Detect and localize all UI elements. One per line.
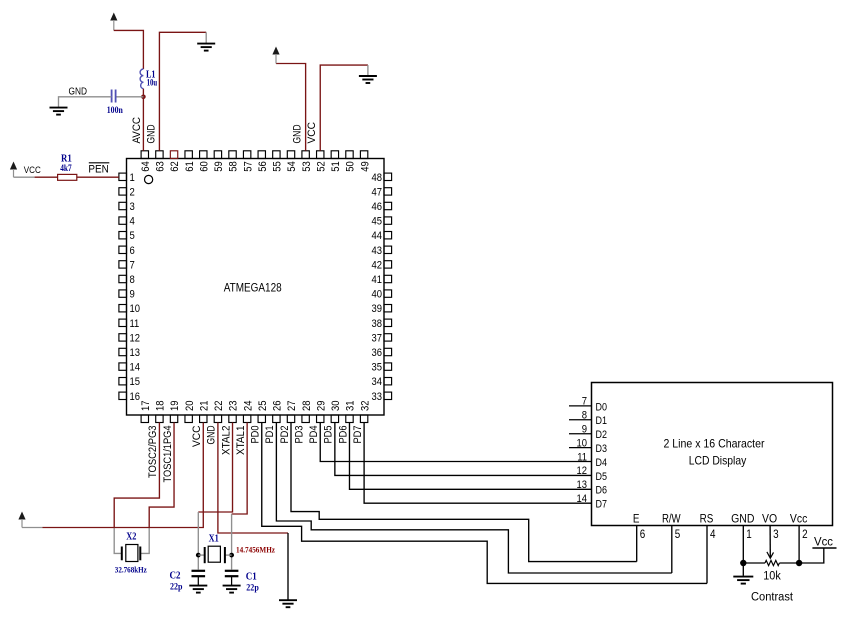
svg-text:26: 26 bbox=[272, 401, 284, 412]
svg-text:D5: D5 bbox=[596, 471, 608, 483]
svg-text:3: 3 bbox=[773, 529, 779, 541]
svg-text:VCC: VCC bbox=[191, 425, 203, 447]
svg-text:54: 54 bbox=[286, 161, 298, 172]
svg-text:15: 15 bbox=[130, 376, 141, 388]
svg-text:14: 14 bbox=[130, 362, 141, 374]
svg-text:25: 25 bbox=[257, 401, 269, 412]
svg-text:11: 11 bbox=[130, 318, 140, 330]
svg-text:Vcc: Vcc bbox=[790, 514, 808, 526]
svg-text:45: 45 bbox=[372, 216, 383, 228]
svg-text:12: 12 bbox=[130, 332, 141, 344]
svg-text:2: 2 bbox=[130, 186, 135, 198]
svg-text:C1: C1 bbox=[246, 571, 257, 582]
svg-text:PD6: PD6 bbox=[337, 426, 349, 444]
svg-text:50: 50 bbox=[345, 161, 357, 172]
svg-text:56: 56 bbox=[257, 161, 269, 172]
svg-text:21: 21 bbox=[198, 401, 210, 412]
svg-text:59: 59 bbox=[213, 161, 225, 172]
svg-text:RS: RS bbox=[700, 514, 714, 526]
svg-text:R/W: R/W bbox=[662, 514, 681, 526]
svg-text:VCC: VCC bbox=[24, 165, 41, 176]
svg-text:GND: GND bbox=[731, 514, 754, 526]
svg-text:GND: GND bbox=[292, 124, 304, 143]
svg-text:8: 8 bbox=[130, 274, 135, 286]
svg-text:42: 42 bbox=[372, 259, 383, 271]
svg-text:58: 58 bbox=[228, 161, 240, 172]
svg-text:D4: D4 bbox=[596, 457, 608, 469]
svg-text:38: 38 bbox=[372, 318, 383, 330]
svg-text:VCC: VCC bbox=[306, 122, 318, 144]
svg-text:64: 64 bbox=[140, 161, 152, 172]
svg-text:63: 63 bbox=[155, 161, 167, 172]
svg-text:55: 55 bbox=[272, 161, 284, 172]
svg-text:22p: 22p bbox=[246, 583, 258, 593]
svg-text:D3: D3 bbox=[596, 443, 608, 455]
svg-text:3: 3 bbox=[130, 201, 135, 213]
svg-text:13: 13 bbox=[130, 347, 141, 359]
svg-text:9: 9 bbox=[130, 289, 135, 301]
svg-text:TOSC2/PG3: TOSC2/PG3 bbox=[147, 426, 159, 479]
svg-text:27: 27 bbox=[286, 401, 298, 412]
svg-text:Vcc: Vcc bbox=[814, 537, 833, 549]
svg-text:23: 23 bbox=[228, 401, 240, 412]
svg-text:43: 43 bbox=[372, 245, 383, 257]
svg-text:7: 7 bbox=[582, 396, 587, 408]
svg-text:24: 24 bbox=[242, 401, 254, 412]
svg-text:5: 5 bbox=[675, 529, 681, 541]
svg-text:PD1: PD1 bbox=[264, 426, 276, 444]
svg-text:22p: 22p bbox=[170, 582, 183, 592]
svg-text:X2: X2 bbox=[126, 531, 136, 542]
svg-text:PD5: PD5 bbox=[323, 426, 335, 444]
svg-text:19: 19 bbox=[169, 401, 181, 412]
svg-text:GND: GND bbox=[206, 425, 218, 444]
svg-text:4: 4 bbox=[130, 216, 135, 228]
svg-text:37: 37 bbox=[372, 332, 383, 344]
svg-text:33: 33 bbox=[372, 391, 383, 403]
svg-text:47: 47 bbox=[372, 186, 383, 198]
svg-text:32: 32 bbox=[359, 401, 371, 412]
svg-text:49: 49 bbox=[359, 161, 371, 172]
svg-text:Contrast: Contrast bbox=[751, 591, 794, 603]
svg-text:4: 4 bbox=[710, 529, 716, 541]
svg-text:VO: VO bbox=[762, 514, 777, 526]
svg-text:6: 6 bbox=[130, 245, 135, 257]
svg-text:44: 44 bbox=[372, 230, 383, 242]
svg-text:29: 29 bbox=[315, 401, 327, 412]
svg-text:36: 36 bbox=[372, 347, 383, 359]
svg-text:100n: 100n bbox=[107, 105, 123, 115]
svg-text:GND: GND bbox=[69, 87, 88, 98]
svg-text:34: 34 bbox=[372, 376, 383, 388]
svg-text:PD7: PD7 bbox=[352, 426, 364, 444]
svg-text:TOSC1/1PG4: TOSC1/1PG4 bbox=[162, 426, 174, 483]
svg-text:61: 61 bbox=[184, 161, 196, 172]
svg-text:4k7: 4k7 bbox=[60, 163, 72, 173]
svg-text:46: 46 bbox=[372, 201, 383, 213]
svg-text:GND: GND bbox=[145, 124, 157, 143]
svg-text:D1: D1 bbox=[596, 415, 608, 427]
svg-text:10: 10 bbox=[130, 303, 141, 315]
svg-text:60: 60 bbox=[198, 161, 210, 172]
svg-text:16: 16 bbox=[130, 391, 141, 403]
svg-text:2: 2 bbox=[802, 529, 808, 541]
svg-text:AVCC: AVCC bbox=[131, 117, 143, 144]
svg-text:31: 31 bbox=[345, 401, 357, 412]
svg-text:41: 41 bbox=[372, 274, 383, 286]
svg-text:30: 30 bbox=[330, 401, 342, 412]
svg-text:PD4: PD4 bbox=[308, 426, 320, 444]
svg-text:9: 9 bbox=[582, 424, 587, 436]
svg-text:20: 20 bbox=[184, 401, 196, 412]
svg-text:39: 39 bbox=[372, 303, 383, 315]
svg-text:14.7456MHz: 14.7456MHz bbox=[236, 545, 275, 555]
svg-text:XTAL2: XTAL2 bbox=[220, 426, 232, 456]
svg-text:10k: 10k bbox=[763, 570, 781, 582]
svg-text:48: 48 bbox=[372, 172, 383, 184]
svg-text:40: 40 bbox=[372, 289, 383, 301]
svg-text:1: 1 bbox=[746, 529, 752, 541]
svg-text:18: 18 bbox=[155, 401, 167, 412]
svg-text:51: 51 bbox=[330, 161, 342, 172]
svg-text:D6: D6 bbox=[596, 485, 608, 497]
svg-text:53: 53 bbox=[301, 161, 313, 172]
svg-text:PD2: PD2 bbox=[279, 426, 291, 444]
svg-text:C2: C2 bbox=[170, 570, 181, 581]
svg-text:D7: D7 bbox=[596, 499, 608, 511]
svg-text:32.768kHz: 32.768kHz bbox=[115, 564, 147, 574]
svg-text:35: 35 bbox=[372, 362, 383, 374]
svg-text:5: 5 bbox=[130, 230, 135, 242]
svg-text:52: 52 bbox=[315, 161, 327, 172]
svg-text:10: 10 bbox=[577, 437, 588, 449]
svg-text:1: 1 bbox=[130, 172, 135, 184]
svg-text:10u: 10u bbox=[147, 78, 158, 88]
svg-text:PEN: PEN bbox=[88, 163, 108, 175]
svg-text:E: E bbox=[633, 514, 640, 526]
svg-text:2 Line x 16 Character: 2 Line x 16 Character bbox=[664, 437, 765, 451]
svg-text:22: 22 bbox=[213, 401, 225, 412]
svg-text:D0: D0 bbox=[596, 401, 608, 413]
svg-text:PD0: PD0 bbox=[250, 426, 262, 444]
svg-text:28: 28 bbox=[301, 401, 313, 412]
svg-text:17: 17 bbox=[140, 401, 152, 412]
svg-text:XTAL1: XTAL1 bbox=[235, 426, 247, 456]
svg-text:D2: D2 bbox=[596, 429, 608, 441]
svg-text:8: 8 bbox=[582, 410, 587, 422]
svg-text:62: 62 bbox=[169, 161, 181, 172]
svg-text:ATMEGA128: ATMEGA128 bbox=[224, 283, 282, 295]
svg-text:LCD Display: LCD Display bbox=[689, 454, 747, 468]
svg-text:6: 6 bbox=[640, 529, 646, 541]
svg-text:57: 57 bbox=[242, 161, 254, 172]
svg-text:PD3: PD3 bbox=[293, 426, 305, 444]
svg-text:7: 7 bbox=[130, 259, 135, 271]
svg-text:X1: X1 bbox=[209, 534, 219, 545]
